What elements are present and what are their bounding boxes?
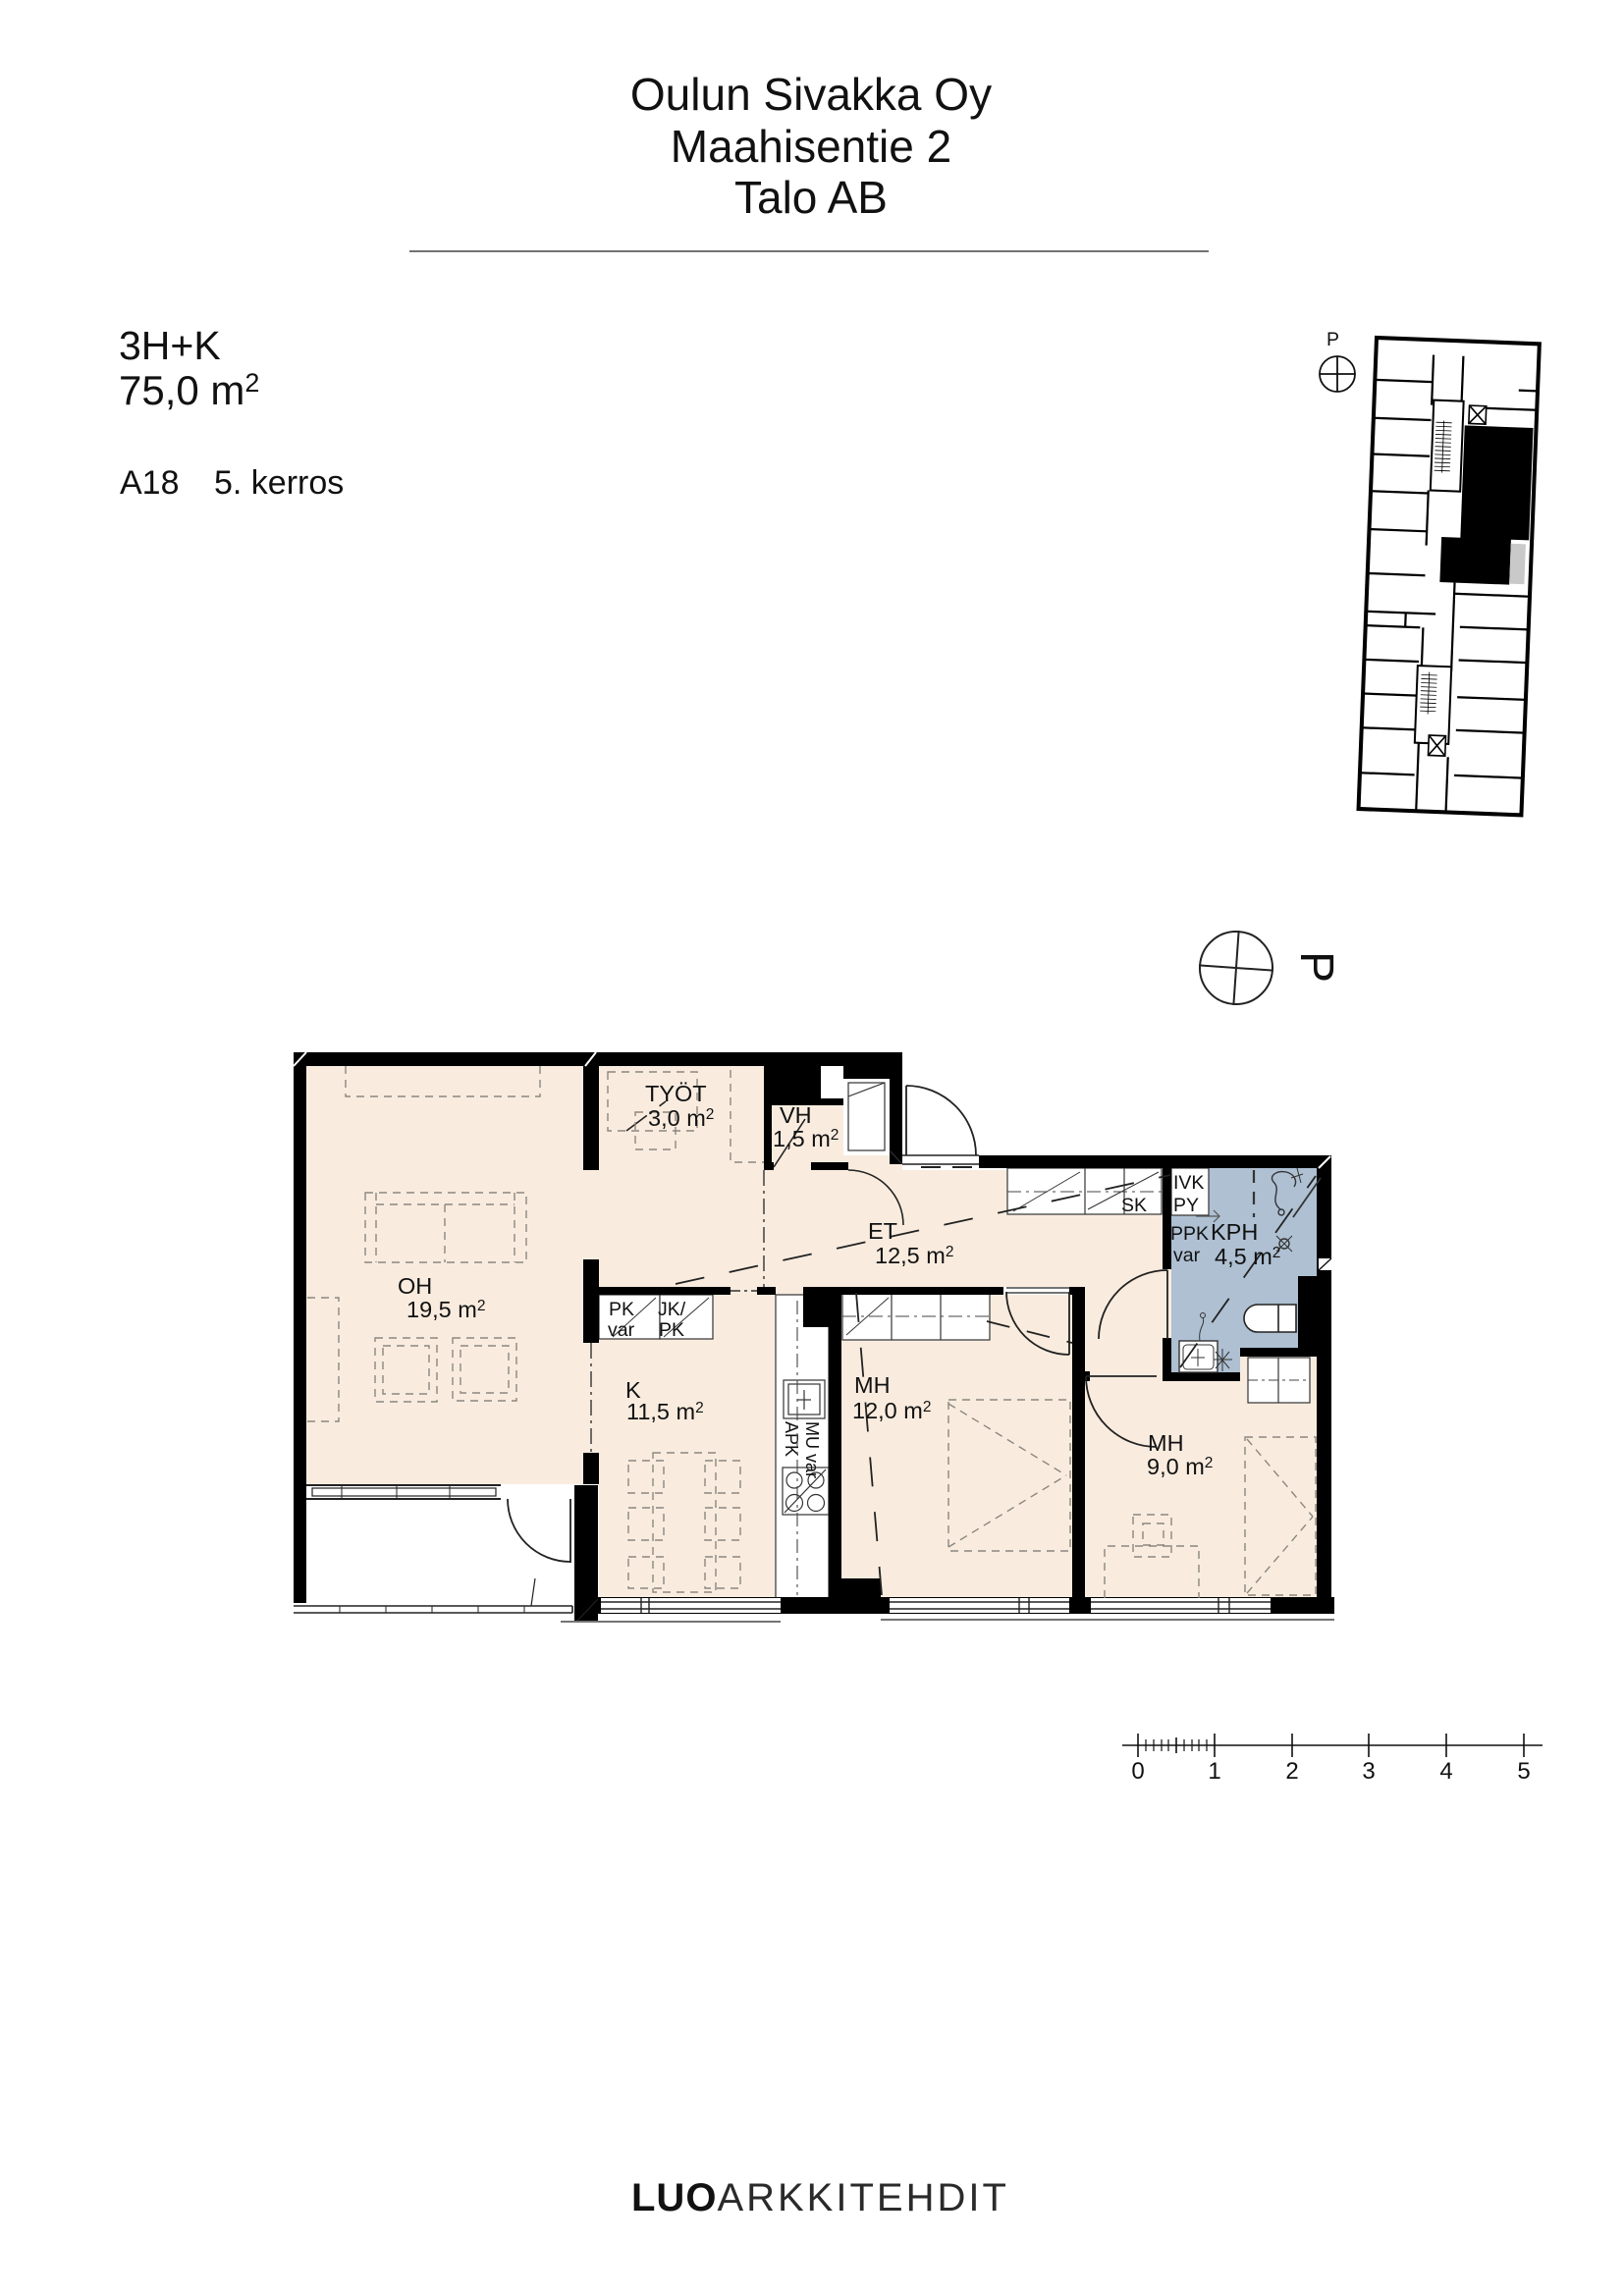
svg-text:VH: VH — [780, 1102, 812, 1128]
svg-text:PPK: PPK — [1170, 1223, 1209, 1245]
svg-text:A18: A18 — [120, 464, 180, 502]
svg-text:2: 2 — [1285, 1758, 1298, 1785]
svg-text:LUOARKKITEHDIT: LUOARKKITEHDIT — [631, 2176, 1009, 2219]
svg-text:APK: APK — [782, 1421, 801, 1457]
svg-text:1,5 m2: 1,5 m2 — [773, 1126, 839, 1151]
svg-text:4,5 m2: 4,5 m2 — [1215, 1244, 1280, 1269]
svg-text:5: 5 — [1517, 1758, 1530, 1785]
svg-text:MU var: MU var — [802, 1421, 822, 1478]
svg-text:1: 1 — [1208, 1758, 1220, 1785]
svg-text:Oulun Sivakka Oy: Oulun Sivakka Oy — [630, 69, 992, 120]
svg-text:IVK: IVK — [1173, 1172, 1204, 1194]
svg-text:var: var — [1173, 1245, 1201, 1266]
svg-text:4: 4 — [1439, 1758, 1452, 1785]
svg-text:3,0 m2: 3,0 m2 — [648, 1105, 714, 1131]
svg-text:PK: PK — [609, 1299, 634, 1320]
svg-text:var: var — [608, 1319, 635, 1341]
svg-text:MH: MH — [854, 1372, 891, 1398]
svg-text:JK/: JK/ — [658, 1299, 686, 1320]
svg-text:9,0 m2: 9,0 m2 — [1147, 1454, 1213, 1479]
svg-text:3H+K: 3H+K — [119, 323, 221, 368]
svg-text:KPH: KPH — [1211, 1219, 1258, 1245]
svg-text:0: 0 — [1131, 1758, 1144, 1785]
svg-text:PK: PK — [659, 1319, 684, 1341]
svg-text:P: P — [1290, 951, 1342, 983]
svg-text:OH: OH — [398, 1273, 432, 1299]
svg-text:12,0 m2: 12,0 m2 — [852, 1398, 931, 1423]
svg-text:PY: PY — [1173, 1195, 1199, 1216]
svg-text:Talo AB: Talo AB — [734, 172, 888, 223]
svg-text:12,5 m2: 12,5 m2 — [875, 1243, 953, 1268]
svg-text:11,5 m2: 11,5 m2 — [626, 1399, 704, 1424]
svg-text:Maahisentie 2: Maahisentie 2 — [671, 121, 951, 172]
svg-text:TYÖT: TYÖT — [645, 1081, 707, 1106]
svg-text:P: P — [1326, 329, 1339, 350]
svg-text:MH: MH — [1148, 1430, 1184, 1456]
svg-text:ET: ET — [868, 1218, 897, 1244]
svg-text:3: 3 — [1362, 1758, 1375, 1785]
svg-text:SK: SK — [1121, 1195, 1147, 1216]
svg-text:19,5 m2: 19,5 m2 — [406, 1297, 485, 1322]
svg-text:5. kerros: 5. kerros — [214, 464, 344, 502]
svg-text:75,0 m2: 75,0 m2 — [119, 367, 259, 413]
